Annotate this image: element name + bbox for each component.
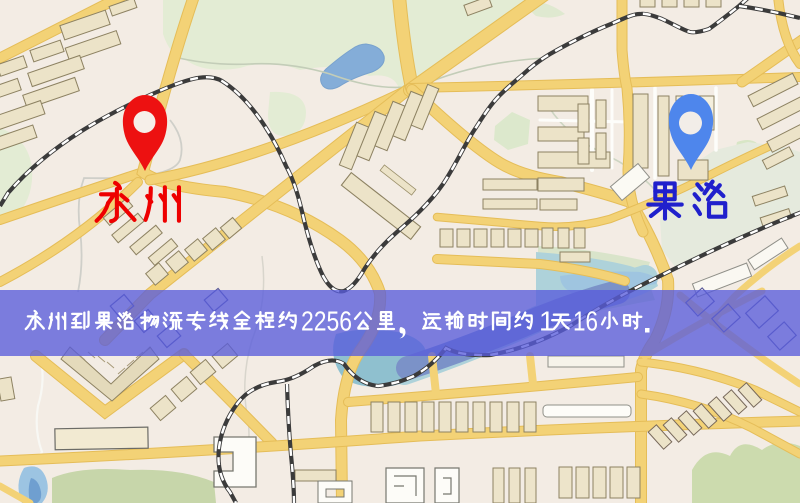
svg-text:2256: 2256: [301, 306, 352, 337]
svg-text:16: 16: [573, 306, 598, 337]
